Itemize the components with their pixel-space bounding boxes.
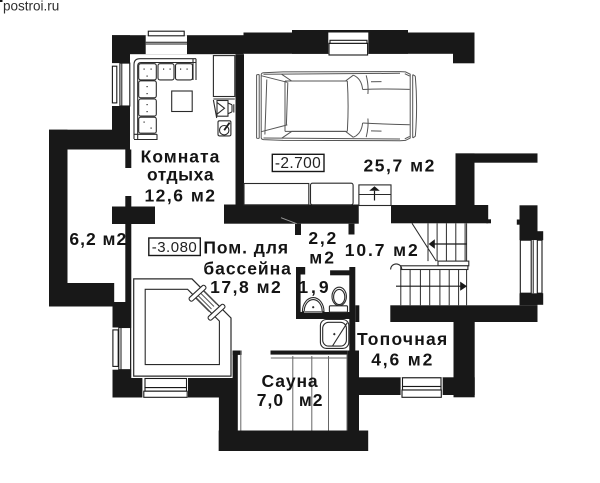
svg-text:7,0: 7,0 [257,390,284,410]
svg-text:10.7 м2: 10.7 м2 [345,240,420,260]
svg-text:4,6 м2: 4,6 м2 [371,349,434,369]
svg-text:2,2: 2,2 [308,228,338,248]
svg-text:бассейна: бассейна [203,259,291,279]
svg-text:Топочная: Топочная [357,329,448,349]
svg-text:-2.700: -2.700 [275,155,321,172]
svg-text:17,8 м2: 17,8 м2 [210,277,282,297]
svg-text:Комната: Комната [141,147,221,167]
svg-text:Сауна: Сауна [261,371,318,391]
svg-text:12,6 м2: 12,6 м2 [144,186,216,206]
svg-text:-3.080: -3.080 [152,239,198,256]
svg-text:м2: м2 [299,390,324,410]
svg-text:м2: м2 [309,247,336,267]
svg-text:Пом. для: Пом. для [203,237,289,257]
svg-text:6,2 м2: 6,2 м2 [69,229,127,249]
svg-text:postroi.ru: postroi.ru [3,0,59,14]
svg-text:25,7 м2: 25,7 м2 [363,156,435,176]
svg-text:отдыха: отдыха [147,165,214,185]
svg-text:1,9: 1,9 [298,277,331,297]
